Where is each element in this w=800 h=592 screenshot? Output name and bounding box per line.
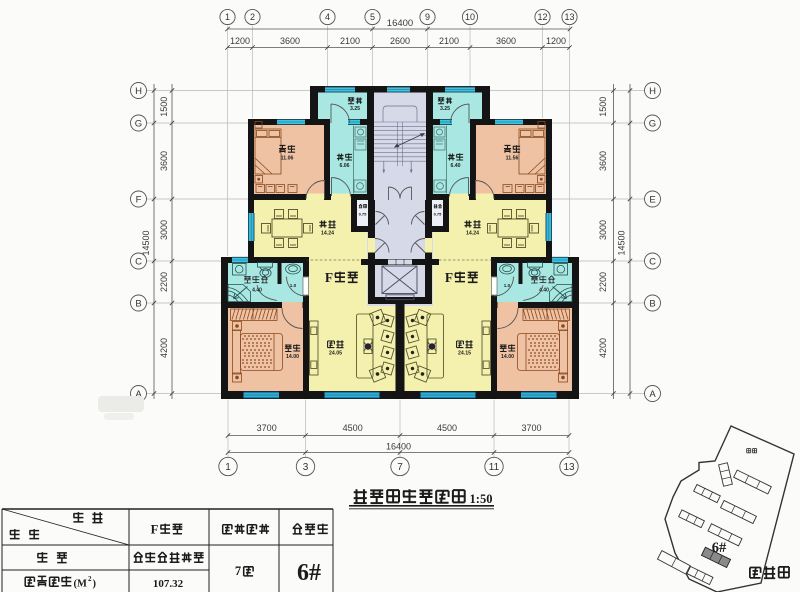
svg-text:14.00: 14.00 bbox=[501, 354, 514, 360]
svg-text:F: F bbox=[445, 270, 453, 285]
svg-text:11.56: 11.56 bbox=[506, 155, 519, 161]
svg-text:): ) bbox=[93, 579, 97, 590]
svg-text:4: 4 bbox=[325, 12, 330, 22]
svg-text:7: 7 bbox=[235, 564, 241, 578]
svg-text:16400: 16400 bbox=[386, 442, 411, 452]
svg-text:13: 13 bbox=[563, 462, 575, 473]
svg-text:2: 2 bbox=[250, 12, 255, 22]
svg-text:3000: 3000 bbox=[598, 220, 608, 240]
svg-text:2200: 2200 bbox=[159, 272, 169, 292]
svg-text:2600: 2600 bbox=[390, 36, 410, 46]
svg-text:F: F bbox=[151, 523, 159, 537]
svg-text:1.0: 1.0 bbox=[504, 283, 511, 288]
svg-text:1500: 1500 bbox=[159, 97, 169, 117]
svg-text:14500: 14500 bbox=[617, 230, 627, 255]
svg-text:3.25: 3.25 bbox=[440, 106, 450, 112]
svg-text:3000: 3000 bbox=[159, 220, 169, 240]
svg-text:3600: 3600 bbox=[598, 151, 608, 171]
svg-text:14.00: 14.00 bbox=[286, 354, 299, 360]
svg-text:2: 2 bbox=[88, 575, 92, 583]
svg-text:1: 1 bbox=[225, 12, 230, 22]
svg-text:2100: 2100 bbox=[340, 36, 360, 46]
svg-text:7: 7 bbox=[397, 462, 403, 473]
svg-text:3600: 3600 bbox=[159, 151, 169, 171]
svg-text:107.32: 107.32 bbox=[153, 578, 184, 590]
svg-text:10: 10 bbox=[465, 12, 475, 22]
svg-text:0.75: 0.75 bbox=[434, 212, 443, 217]
svg-text:1: 1 bbox=[225, 462, 231, 473]
svg-text:3700: 3700 bbox=[521, 423, 541, 433]
svg-text:4500: 4500 bbox=[437, 423, 457, 433]
svg-text:12: 12 bbox=[537, 12, 547, 22]
svg-text:A: A bbox=[649, 389, 656, 400]
svg-text:4200: 4200 bbox=[598, 338, 608, 358]
svg-text:6#: 6# bbox=[712, 540, 727, 556]
svg-text:B: B bbox=[135, 298, 141, 309]
svg-text:G: G bbox=[649, 118, 656, 129]
svg-text:24.15: 24.15 bbox=[458, 350, 471, 356]
svg-text:F: F bbox=[325, 270, 333, 285]
svg-text:H: H bbox=[649, 86, 656, 97]
svg-text:9: 9 bbox=[425, 12, 430, 22]
svg-text:B: B bbox=[649, 298, 655, 309]
svg-text:16400: 16400 bbox=[387, 18, 413, 29]
svg-text:G: G bbox=[135, 118, 142, 129]
svg-text:5: 5 bbox=[370, 12, 375, 22]
svg-text:E: E bbox=[649, 194, 655, 205]
svg-text:6#: 6# bbox=[297, 560, 321, 586]
svg-text:0.75: 0.75 bbox=[359, 212, 368, 217]
svg-text:1.0: 1.0 bbox=[290, 283, 297, 288]
svg-text:14500: 14500 bbox=[141, 230, 151, 255]
svg-text:3700: 3700 bbox=[257, 423, 277, 433]
svg-text:C: C bbox=[649, 256, 656, 267]
svg-text:3.25: 3.25 bbox=[350, 106, 360, 112]
svg-text:6.06: 6.06 bbox=[339, 163, 349, 169]
svg-text:F: F bbox=[136, 194, 142, 205]
svg-text:14.24: 14.24 bbox=[321, 230, 334, 236]
svg-text:3600: 3600 bbox=[280, 36, 300, 46]
svg-text:4.40: 4.40 bbox=[539, 288, 549, 294]
svg-text:24.05: 24.05 bbox=[329, 350, 342, 356]
svg-text:2200: 2200 bbox=[598, 272, 608, 292]
svg-text:C: C bbox=[135, 256, 142, 267]
svg-text:11.06: 11.06 bbox=[281, 155, 294, 161]
svg-text:1:50: 1:50 bbox=[470, 492, 493, 506]
svg-text:1200: 1200 bbox=[546, 36, 566, 46]
svg-text:H: H bbox=[135, 86, 142, 97]
svg-text:13: 13 bbox=[564, 12, 574, 22]
svg-text:3600: 3600 bbox=[496, 36, 516, 46]
svg-text:1500: 1500 bbox=[598, 97, 608, 117]
svg-text:4500: 4500 bbox=[343, 423, 363, 433]
svg-text:11: 11 bbox=[489, 462, 500, 473]
svg-text:1200: 1200 bbox=[230, 36, 250, 46]
svg-text:4.40: 4.40 bbox=[252, 288, 262, 294]
svg-text:2100: 2100 bbox=[439, 36, 459, 46]
svg-text:14.24: 14.24 bbox=[466, 230, 479, 236]
svg-text:6.40: 6.40 bbox=[450, 163, 460, 169]
svg-text:3: 3 bbox=[303, 462, 309, 473]
svg-text:(M: (M bbox=[74, 579, 87, 590]
svg-text:4200: 4200 bbox=[159, 338, 169, 358]
